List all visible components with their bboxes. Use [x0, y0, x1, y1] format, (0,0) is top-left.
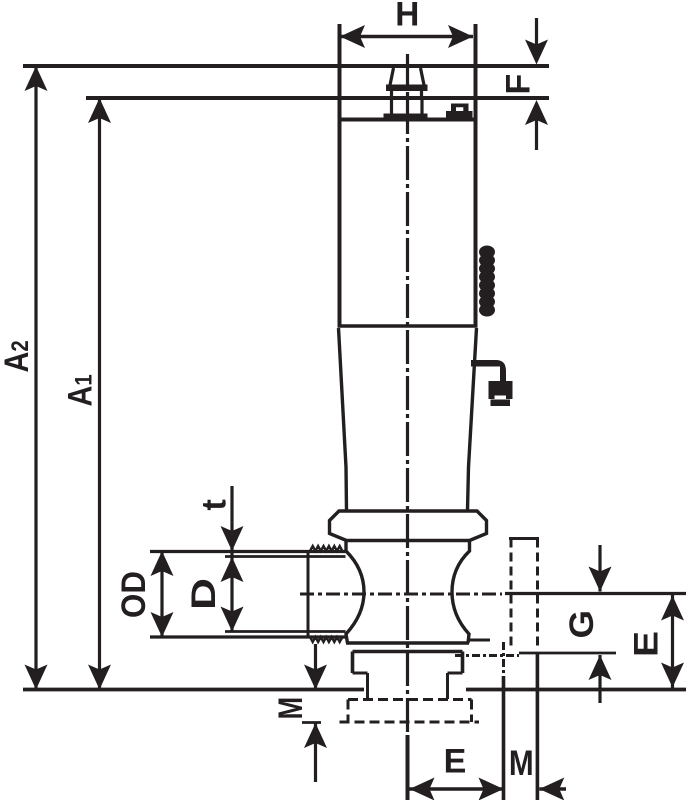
svg-text:t: t: [196, 499, 234, 510]
svg-text:H: H: [395, 0, 419, 34]
svg-text:E: E: [627, 631, 665, 657]
svg-text:A1: A1: [60, 374, 99, 406]
svg-text:F: F: [500, 74, 538, 95]
svg-text:M: M: [509, 744, 534, 783]
svg-text:M: M: [271, 697, 310, 720]
svg-text:D: D: [185, 578, 223, 610]
svg-text:OD: OD: [114, 571, 153, 618]
svg-text:G: G: [563, 610, 600, 639]
svg-text:E: E: [444, 743, 467, 781]
svg-text:A2: A2: [0, 340, 36, 372]
